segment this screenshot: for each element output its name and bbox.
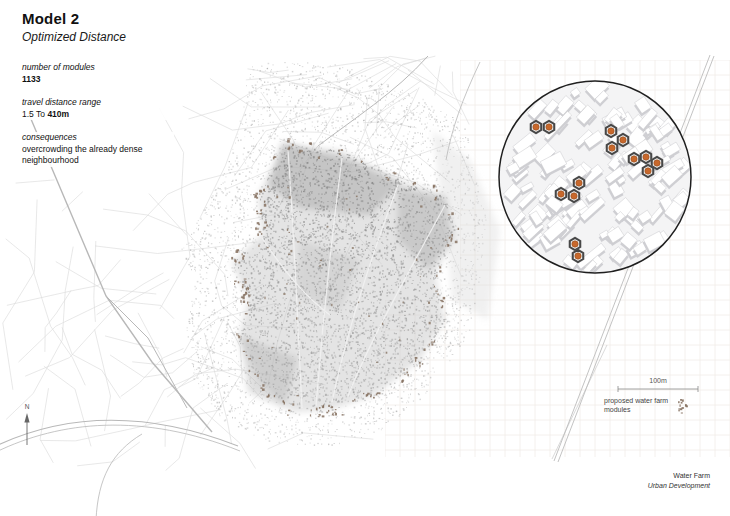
legend-label: proposed water farm modules — [604, 396, 676, 414]
page-title: Model 2 — [22, 10, 126, 27]
page-subtitle: Optimized Distance — [22, 30, 126, 44]
scale-bar-label: 100m — [618, 377, 698, 384]
stats-panel: number of modules 1133 travel distance r… — [22, 62, 174, 179]
stat-travel-distance: travel distance range 1.5 To 410m — [22, 97, 174, 120]
consequences-label: consequences — [22, 132, 174, 144]
stat-number-of-modules: number of modules 1133 — [22, 62, 174, 85]
slide: Model 2 Optimized Distance number of mod… — [0, 0, 730, 516]
modules-count-label: number of modules — [22, 62, 174, 74]
distance-range-value: 1.5 To 410m — [22, 109, 174, 121]
distance-range-label: travel distance range — [22, 97, 174, 109]
header: Model 2 Optimized Distance — [22, 10, 132, 44]
footer: Water Farm Urban Development — [648, 471, 710, 490]
footer-project: Water Farm — [648, 471, 710, 481]
legend-module-icon — [678, 399, 688, 414]
north-label: N — [21, 403, 33, 410]
modules-count-value: 1133 — [22, 74, 174, 86]
stat-consequences: consequences overcrowding the already de… — [22, 132, 174, 167]
scale-bar — [618, 386, 698, 392]
distance-max: 410m — [47, 109, 69, 119]
consequences-text: overcrowding the already dense neighbour… — [22, 144, 158, 167]
footer-series: Urban Development — [648, 481, 710, 491]
distance-prefix: 1.5 To — [22, 109, 47, 119]
